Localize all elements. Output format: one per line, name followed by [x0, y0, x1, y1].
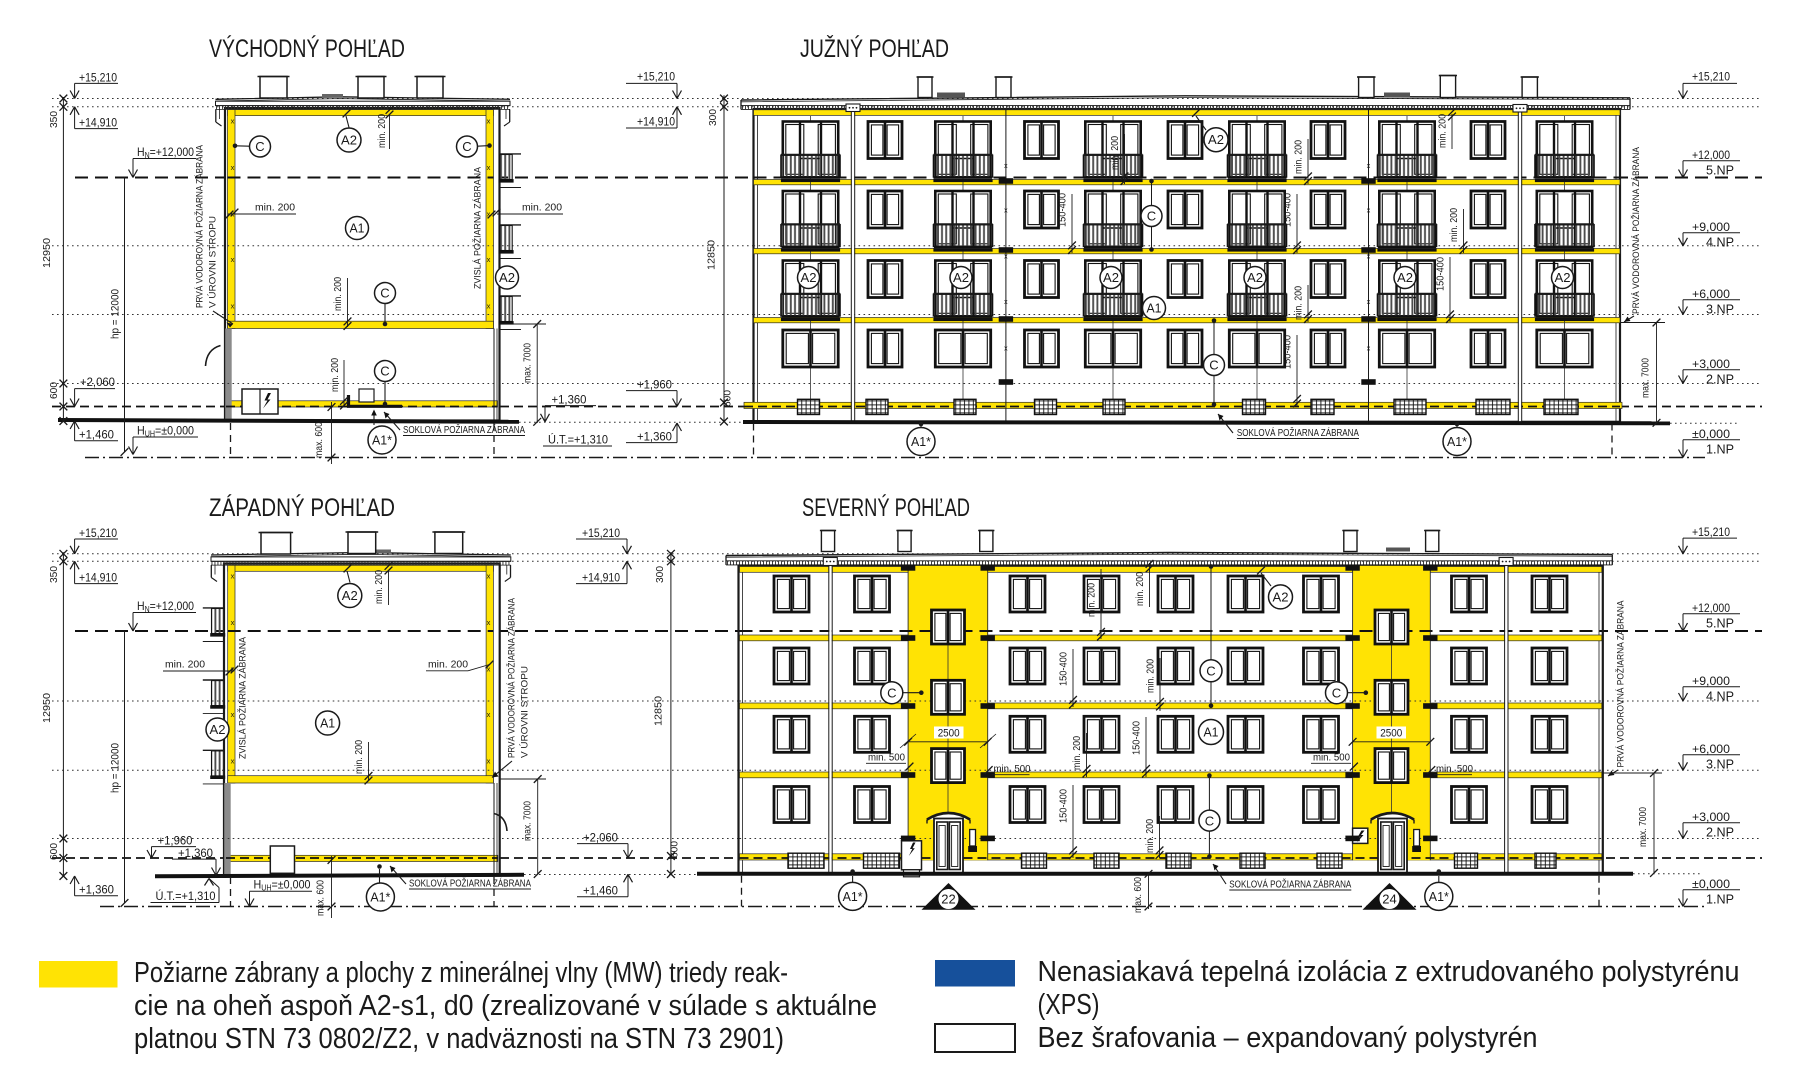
svg-text:x: x — [231, 117, 235, 126]
svg-text:+2,060: +2,060 — [80, 375, 115, 389]
svg-text:12950: 12950 — [41, 238, 53, 268]
svg-text:A1: A1 — [1204, 726, 1219, 740]
svg-text:A1*: A1* — [1447, 434, 1467, 449]
svg-text:+12,000: +12,000 — [1692, 601, 1730, 615]
svg-text:4.NP: 4.NP — [1706, 235, 1734, 250]
svg-text:A2: A2 — [1208, 133, 1224, 147]
svg-text:SOKLOVÁ POŽIARNA ZÁBRANA: SOKLOVÁ POŽIARNA ZÁBRANA — [1237, 426, 1359, 439]
svg-text:Ú.T.=+1,310: Ú.T.=+1,310 — [548, 432, 608, 447]
svg-text:Ú.T.=+1,310: Ú.T.=+1,310 — [156, 888, 216, 903]
svg-text:A1*: A1* — [372, 433, 392, 448]
svg-text:min. 500: min. 500 — [868, 751, 905, 763]
svg-text:min. 200: min. 200 — [1448, 208, 1460, 242]
svg-text:150-400: 150-400 — [1282, 193, 1294, 227]
svg-text:+15,210: +15,210 — [79, 526, 117, 540]
svg-text:x: x — [487, 618, 491, 627]
svg-text:x: x — [231, 618, 235, 627]
svg-text:+14,910: +14,910 — [637, 115, 675, 129]
svg-text:min. 500: min. 500 — [1436, 763, 1473, 775]
svg-text:Nenasiakavá tepelná izolácia z: Nenasiakavá tepelná izolácia z extrudova… — [1038, 956, 1740, 988]
svg-text:C: C — [380, 286, 389, 301]
svg-text:max. 600: max. 600 — [313, 422, 325, 458]
svg-text:V ÚROVNI STROPU: V ÚROVNI STROPU — [208, 216, 219, 308]
svg-text:+1,460: +1,460 — [79, 428, 114, 442]
svg-text:300: 300 — [654, 566, 666, 583]
svg-text:x: x — [231, 163, 235, 172]
svg-text:±0,000: ±0,000 — [1692, 877, 1730, 891]
svg-text:min. 200: min. 200 — [1293, 286, 1305, 320]
svg-text:x: x — [231, 302, 235, 311]
svg-text:+1,460: +1,460 — [583, 884, 618, 898]
svg-text:1.NP: 1.NP — [1706, 892, 1734, 907]
svg-text:x: x — [1004, 254, 1008, 261]
svg-text:600: 600 — [722, 390, 734, 407]
svg-text:3.NP: 3.NP — [1706, 757, 1734, 772]
svg-text:x: x — [1367, 163, 1371, 170]
svg-text:A1*: A1* — [843, 889, 863, 904]
svg-text:+15,210: +15,210 — [1692, 70, 1730, 84]
svg-text:12950: 12950 — [41, 693, 53, 723]
svg-text:VÝCHODNÝ POHĽAD: VÝCHODNÝ POHĽAD — [209, 34, 405, 63]
svg-text:600: 600 — [48, 843, 60, 860]
svg-text:(XPS): (XPS) — [1038, 989, 1100, 1021]
svg-text:+3,000: +3,000 — [1692, 357, 1730, 371]
svg-text:x: x — [231, 572, 235, 581]
svg-text:x: x — [1004, 208, 1008, 215]
svg-text:max. 7000: max. 7000 — [1637, 807, 1649, 847]
svg-text:4.NP: 4.NP — [1706, 689, 1734, 704]
svg-text:+12,000: +12,000 — [1692, 148, 1730, 162]
svg-text:A2: A2 — [1555, 271, 1571, 285]
svg-text:+15,210: +15,210 — [637, 70, 675, 84]
svg-text:+1,360: +1,360 — [637, 429, 672, 443]
svg-text:x: x — [1004, 346, 1008, 353]
svg-text:min. 500: min. 500 — [994, 763, 1031, 775]
svg-text:2.NP: 2.NP — [1706, 825, 1734, 840]
svg-text:+6,000: +6,000 — [1692, 742, 1730, 756]
svg-text:A2: A2 — [499, 271, 515, 285]
svg-text:350: 350 — [48, 111, 60, 128]
svg-text:+14,910: +14,910 — [79, 571, 117, 585]
svg-text:max. 7000: max. 7000 — [1640, 358, 1652, 398]
svg-text:A1*: A1* — [1429, 889, 1449, 904]
svg-text:SOKLOVÁ POŽIARNA ZÁBRANA: SOKLOVÁ POŽIARNA ZÁBRANA — [409, 877, 531, 890]
svg-text:platnou STN 73 0802/Z2, v nadv: platnou STN 73 0802/Z2, v nadväznosti na… — [134, 1023, 784, 1055]
svg-text:x: x — [1004, 163, 1008, 170]
svg-text:max. 600: max. 600 — [1132, 877, 1144, 913]
svg-text:150-400: 150-400 — [1057, 193, 1069, 227]
svg-text:min. 200: min. 200 — [255, 202, 295, 214]
svg-text:2.NP: 2.NP — [1706, 372, 1734, 387]
svg-text:+15,210: +15,210 — [1692, 525, 1730, 539]
svg-text:A2: A2 — [1397, 271, 1413, 285]
svg-text:min. 200: min. 200 — [522, 202, 562, 214]
svg-text:min. 200: min. 200 — [353, 740, 365, 774]
svg-text:+15,210: +15,210 — [79, 71, 117, 85]
svg-text:ZVISLÁ POŽIARNA ZÁBRANA: ZVISLÁ POŽIARNA ZÁBRANA — [473, 166, 484, 289]
svg-text:Bez šrafovania – expandovaný p: Bez šrafovania – expandovaný polystyrén — [1038, 1022, 1538, 1054]
svg-text:A1*: A1* — [911, 434, 931, 449]
svg-text:ZÁPADNÝ POHĽAD: ZÁPADNÝ POHĽAD — [209, 493, 395, 522]
svg-text:300: 300 — [707, 109, 719, 126]
svg-text:max. 7000: max. 7000 — [522, 801, 534, 841]
svg-text:A2: A2 — [210, 723, 226, 737]
svg-text:min. 200: min. 200 — [1145, 659, 1157, 693]
svg-text:12850: 12850 — [706, 240, 718, 270]
svg-text:A1: A1 — [1147, 302, 1162, 316]
svg-text:SOKLOVÁ POŽIARNA ZÁBRANA: SOKLOVÁ POŽIARNA ZÁBRANA — [1229, 878, 1351, 891]
svg-text:5.NP: 5.NP — [1706, 163, 1734, 178]
svg-text:600: 600 — [48, 382, 60, 399]
svg-text:150-400: 150-400 — [1058, 652, 1070, 686]
svg-text:+1,360: +1,360 — [178, 846, 213, 860]
svg-text:hp = 12000: hp = 12000 — [110, 289, 122, 339]
svg-text:A1*: A1* — [370, 890, 390, 905]
svg-text:C: C — [380, 364, 389, 379]
svg-text:350: 350 — [48, 566, 60, 583]
svg-text:x: x — [487, 117, 491, 126]
svg-text:x: x — [487, 710, 491, 719]
svg-text:1.NP: 1.NP — [1706, 442, 1734, 457]
svg-text:C: C — [1332, 685, 1341, 700]
svg-text:A2: A2 — [341, 134, 357, 148]
svg-text:A2: A2 — [1247, 271, 1263, 285]
svg-text:+9,000: +9,000 — [1692, 674, 1730, 688]
svg-text:C: C — [462, 139, 471, 154]
svg-text:min. 200: min. 200 — [428, 659, 468, 671]
svg-text:x: x — [1367, 346, 1371, 353]
svg-text:C: C — [887, 685, 896, 700]
svg-text:x: x — [231, 757, 235, 766]
svg-text:+1,360: +1,360 — [79, 883, 114, 897]
svg-text:+3,000: +3,000 — [1692, 810, 1730, 824]
svg-text:+1,360: +1,360 — [552, 392, 587, 406]
svg-text:hp = 12000: hp = 12000 — [110, 743, 122, 793]
svg-text:A2: A2 — [953, 271, 969, 285]
svg-text:PRVÁ VODOROVNÁ POŽIARNA ZÁBRAN: PRVÁ VODOROVNÁ POŽIARNA ZÁBRANA — [1616, 600, 1627, 768]
svg-text:min. 200: min. 200 — [1071, 736, 1083, 770]
svg-text:min. 200: min. 200 — [1134, 572, 1146, 606]
svg-text:150-400: 150-400 — [1435, 257, 1447, 291]
svg-text:+1,960: +1,960 — [637, 377, 672, 391]
svg-text:min. 500: min. 500 — [1313, 751, 1350, 763]
svg-text:x: x — [487, 572, 491, 581]
svg-text:150-400: 150-400 — [1131, 721, 1143, 755]
svg-text:150-400: 150-400 — [1282, 335, 1294, 369]
svg-text:min. 200: min. 200 — [165, 659, 205, 671]
svg-text:x: x — [231, 710, 235, 719]
svg-text:x: x — [1367, 299, 1371, 306]
svg-text:x: x — [1367, 254, 1371, 261]
svg-text:x: x — [487, 757, 491, 766]
svg-text:min. 200: min. 200 — [1437, 114, 1449, 148]
svg-text:Požiarne zábrany a plochy z mi: Požiarne zábrany a plochy z minerálnej v… — [134, 957, 788, 989]
svg-text:x: x — [487, 302, 491, 311]
svg-text:+9,000: +9,000 — [1692, 220, 1730, 234]
svg-text:min. 200: min. 200 — [1144, 819, 1156, 853]
svg-text:12850: 12850 — [653, 696, 665, 726]
svg-text:5.NP: 5.NP — [1706, 616, 1734, 631]
svg-text:cie na oheň aspoň A2-s1, d0 (z: cie na oheň aspoň A2-s1, d0 (zrealizovan… — [134, 990, 877, 1022]
svg-text:2500: 2500 — [938, 728, 960, 740]
svg-text:+15,210: +15,210 — [582, 526, 620, 540]
svg-text:SOKLOVÁ POŽIARNA ZÁBRANA: SOKLOVÁ POŽIARNA ZÁBRANA — [403, 423, 525, 436]
svg-text:min. 200: min. 200 — [332, 277, 344, 311]
svg-text:SEVERNÝ POHĽAD: SEVERNÝ POHĽAD — [802, 493, 970, 522]
svg-text:min. 200: min. 200 — [373, 570, 385, 604]
svg-text:min. 200: min. 200 — [1109, 136, 1121, 170]
svg-text:C: C — [255, 139, 264, 154]
svg-text:max. 7000: max. 7000 — [522, 343, 534, 383]
svg-text:+14,910: +14,910 — [582, 571, 620, 585]
svg-text:+6,000: +6,000 — [1692, 287, 1730, 301]
svg-text:x: x — [1367, 208, 1371, 215]
svg-text:C: C — [1209, 358, 1218, 373]
svg-text:x: x — [487, 255, 491, 264]
svg-text:A2: A2 — [801, 271, 817, 285]
svg-text:V ÚROVNI STROPU: V ÚROVNI STROPU — [520, 666, 531, 758]
svg-text:min. 200: min. 200 — [376, 114, 388, 148]
svg-text:ZVISLÁ POŽIARNA ZÁBRANA: ZVISLÁ POŽIARNA ZÁBRANA — [238, 636, 249, 759]
svg-text:+2,060: +2,060 — [583, 830, 618, 844]
svg-text:C: C — [1205, 813, 1214, 828]
svg-text:A2: A2 — [1273, 590, 1289, 604]
svg-text:JUŽNÝ POHĽAD: JUŽNÝ POHĽAD — [800, 34, 949, 63]
svg-text:A1: A1 — [320, 717, 335, 731]
svg-text:x: x — [231, 255, 235, 264]
svg-text:min. 200: min. 200 — [329, 358, 341, 392]
svg-text:PRVÁ VODOROVNÁ POŽIARNA ZÁBRAN: PRVÁ VODOROVNÁ POŽIARNA ZÁBRANA — [1631, 146, 1642, 314]
svg-text:±0,000: ±0,000 — [1692, 427, 1730, 441]
svg-text:A2: A2 — [342, 589, 358, 603]
svg-text:24: 24 — [1382, 892, 1396, 907]
svg-text:PRVÁ VODOROVNÁ POŽIARNA ZÁBRAN: PRVÁ VODOROVNÁ POŽIARNA ZÁBRANA — [195, 144, 206, 308]
svg-text:x: x — [487, 163, 491, 172]
svg-text:C: C — [1147, 209, 1156, 224]
svg-text:150-400: 150-400 — [1058, 789, 1070, 823]
svg-text:2500: 2500 — [1380, 728, 1402, 740]
svg-text:x: x — [1004, 299, 1008, 306]
svg-text:A2: A2 — [1103, 271, 1119, 285]
svg-text:3.NP: 3.NP — [1706, 302, 1734, 317]
svg-text:22: 22 — [941, 892, 955, 907]
svg-text:max. 600: max. 600 — [315, 880, 327, 916]
svg-text:+14,910: +14,910 — [79, 116, 117, 130]
svg-text:PRVÁ VODOROVNÁ POŽIARNA ZÁBRAN: PRVÁ VODOROVNÁ POŽIARNA ZÁBRANA — [507, 597, 518, 758]
svg-text:600: 600 — [669, 841, 681, 858]
svg-text:A1: A1 — [350, 222, 365, 236]
svg-text:C: C — [1206, 663, 1215, 678]
svg-text:min. 200: min. 200 — [1086, 583, 1098, 617]
svg-text:min. 200: min. 200 — [1293, 140, 1305, 174]
